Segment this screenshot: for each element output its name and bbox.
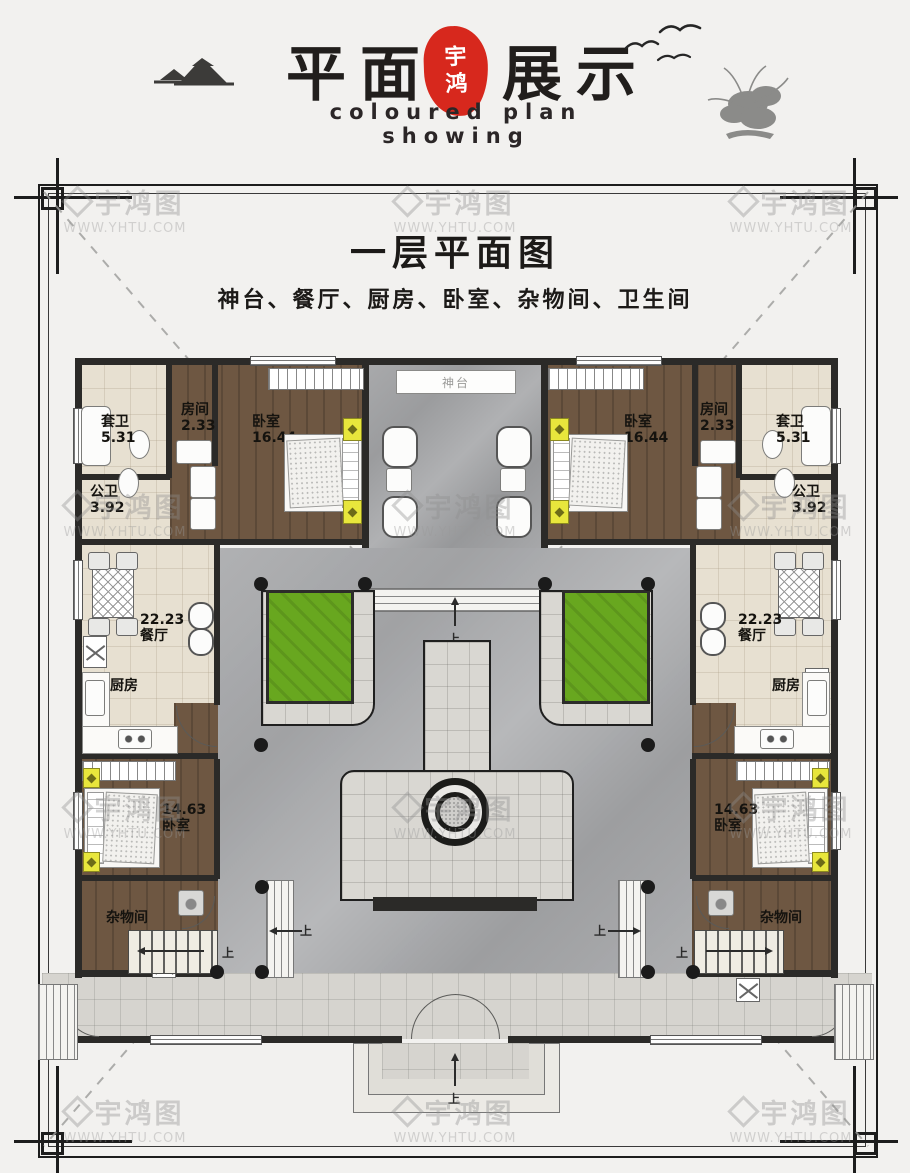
room-name: 套卫 xyxy=(776,414,811,430)
wall xyxy=(692,875,838,881)
column xyxy=(358,577,372,591)
dining-chair xyxy=(88,552,110,570)
up-label: 上 xyxy=(448,1090,460,1107)
room-label-bedroom-front-right: 卧室 16.44 xyxy=(624,414,668,446)
basin xyxy=(700,440,736,464)
side-table xyxy=(500,468,526,492)
wardrobe xyxy=(548,368,644,390)
room-name: 公卫 xyxy=(90,484,125,500)
wall xyxy=(690,759,696,879)
room-area: 2.33 xyxy=(700,418,735,434)
room-name: 厨房 xyxy=(110,678,138,694)
grass-bed-left xyxy=(266,590,354,704)
dining-chair xyxy=(802,618,824,636)
room-name: 杂物间 xyxy=(760,910,802,926)
window xyxy=(576,356,662,366)
dining-chair xyxy=(116,618,138,636)
column xyxy=(641,577,655,591)
lounge-chair xyxy=(700,628,726,656)
window xyxy=(650,1035,762,1045)
wall xyxy=(541,358,548,548)
fridge xyxy=(83,636,107,668)
poster-canvas: 平面 宇 鸿 展示 coloured plan showing xyxy=(0,0,910,1173)
column xyxy=(210,965,224,979)
room-area: 14.63 xyxy=(714,802,758,818)
room-name: 卧室 xyxy=(252,414,296,430)
column xyxy=(686,965,700,979)
room-area: 22.23 xyxy=(140,612,184,628)
window xyxy=(831,560,841,620)
window xyxy=(831,792,841,850)
window xyxy=(150,1035,262,1045)
room-label-dining-right: 22.23 餐厅 xyxy=(738,612,782,644)
kitchen-sink xyxy=(807,680,827,716)
lounge-chair xyxy=(188,628,214,656)
room-label-publicbath-right: 公卫 3.92 xyxy=(792,484,827,516)
nightstand-yellow xyxy=(343,500,362,524)
column xyxy=(255,965,269,979)
bed-blanket xyxy=(568,438,625,509)
up-arrow xyxy=(140,950,204,952)
window xyxy=(73,560,83,620)
room-name: 杂物间 xyxy=(106,910,148,926)
armchair xyxy=(496,426,532,468)
bed-pillows xyxy=(553,438,570,508)
grass-bed-right xyxy=(562,590,650,704)
up-label: 上 xyxy=(676,944,688,961)
room-name: 房间 xyxy=(181,402,216,418)
up-arrow xyxy=(454,1056,456,1086)
room-name: 餐厅 xyxy=(140,628,184,644)
birds-icon xyxy=(624,20,704,70)
page-subtitle: 神台、餐厅、厨房、卧室、杂物间、卫生间 xyxy=(105,282,805,314)
room-area: 16.44 xyxy=(624,430,668,446)
room-name: 房间 xyxy=(700,402,735,418)
vanity-sink xyxy=(696,466,722,498)
room-name: 卧室 xyxy=(714,818,758,834)
utility-box xyxy=(736,978,760,1002)
lounge-chair xyxy=(188,602,214,630)
room-label-kitchen-left: 厨房 xyxy=(110,678,138,694)
room-label-publicbath-left: 公卫 3.92 xyxy=(90,484,125,516)
dining-table xyxy=(92,568,134,618)
wall xyxy=(692,362,698,466)
bed-blanket xyxy=(754,792,810,865)
up-label: 上 xyxy=(594,922,606,939)
nightstand-yellow xyxy=(550,418,569,441)
room-label-smallroom-right: 房间 2.33 xyxy=(700,402,735,434)
wall xyxy=(214,545,220,705)
nightstand-yellow xyxy=(550,500,569,524)
lounge-chair xyxy=(700,602,726,630)
column xyxy=(254,738,268,752)
stove xyxy=(760,729,794,749)
wall xyxy=(690,545,696,705)
room-area: 5.31 xyxy=(776,430,811,446)
seal-char-1: 宇 xyxy=(444,43,467,71)
nightstand-yellow xyxy=(343,418,362,441)
nightstand-yellow xyxy=(83,768,100,788)
bed-blanket xyxy=(286,438,343,509)
dining-chair xyxy=(116,552,138,570)
room-label-storage-right: 杂物间 xyxy=(760,910,802,926)
room-area: 14.63 xyxy=(162,802,206,818)
bed-blanket xyxy=(102,792,158,865)
room-label-kitchen-right: 厨房 xyxy=(772,678,800,694)
armchair xyxy=(382,496,418,538)
room-area: 2.33 xyxy=(181,418,216,434)
column xyxy=(641,738,655,752)
nightstand-yellow xyxy=(812,852,829,872)
altar-label: 神台 xyxy=(442,374,470,391)
wardrobe xyxy=(268,368,364,390)
window xyxy=(250,356,336,366)
column xyxy=(254,577,268,591)
vanity-sink xyxy=(696,498,722,530)
window xyxy=(73,792,83,850)
side-table xyxy=(386,468,412,492)
basin xyxy=(176,440,212,464)
tree-icon xyxy=(696,56,796,140)
dining-chair xyxy=(88,618,110,636)
room-name: 套卫 xyxy=(101,414,136,430)
room-name: 卧室 xyxy=(162,818,206,834)
dining-table xyxy=(778,568,820,618)
nightstand-yellow xyxy=(812,768,829,788)
up-label: 上 xyxy=(300,922,312,939)
armchair xyxy=(496,496,532,538)
room-label-storage-left: 杂物间 xyxy=(106,910,148,926)
room-name: 厨房 xyxy=(772,678,800,694)
up-label: 上 xyxy=(222,944,234,961)
column xyxy=(641,880,655,894)
seal-char-2: 鸿 xyxy=(445,71,468,99)
room-label-smallroom-left: 房间 2.33 xyxy=(181,402,216,434)
room-name: 卧室 xyxy=(624,414,668,430)
wall xyxy=(736,362,742,478)
room-area: 3.92 xyxy=(792,500,827,516)
column xyxy=(641,965,655,979)
room-area: 3.92 xyxy=(90,500,125,516)
room-label-bedroom-rear-left: 14.63 卧室 xyxy=(162,802,206,834)
wall xyxy=(78,539,366,545)
stove xyxy=(118,729,152,749)
up-arrow xyxy=(272,930,302,932)
dining-chair xyxy=(802,552,824,570)
screen-wall xyxy=(373,897,537,911)
up-arrow xyxy=(454,600,456,626)
room-label-ensuite-right: 套卫 5.31 xyxy=(776,414,811,446)
room-name: 餐厅 xyxy=(738,628,782,644)
kitchen-sink xyxy=(85,680,105,716)
armchair xyxy=(382,426,418,468)
east-entry-steps xyxy=(834,984,874,1060)
west-entry-steps xyxy=(38,984,78,1060)
wall xyxy=(75,358,838,365)
room-area: 5.31 xyxy=(101,430,136,446)
courtyard-circle-center xyxy=(435,792,475,832)
column xyxy=(538,577,552,591)
room-label-bedroom-rear-right: 14.63 卧室 xyxy=(714,802,758,834)
nightstand-yellow xyxy=(83,852,100,872)
bed-pillows xyxy=(342,438,359,508)
wall xyxy=(214,759,220,879)
wall xyxy=(78,875,218,881)
header-subtitle: coloured plan showing xyxy=(276,100,636,148)
wall xyxy=(166,362,172,478)
dining-chair xyxy=(774,552,796,570)
altar-table: 神台 xyxy=(396,370,516,394)
courtyard-center-path xyxy=(423,640,491,782)
window xyxy=(831,408,841,464)
room-name: 公卫 xyxy=(792,484,827,500)
up-arrow xyxy=(608,930,638,932)
vanity-sink xyxy=(190,498,216,530)
up-arrow xyxy=(706,950,770,952)
room-label-ensuite-left: 套卫 5.31 xyxy=(101,414,136,446)
mountain-icon xyxy=(140,36,260,96)
room-area: 22.23 xyxy=(738,612,782,628)
room-label-dining-left: 22.23 餐厅 xyxy=(140,612,184,644)
column xyxy=(255,880,269,894)
page-title: 一层平面图 xyxy=(255,224,655,276)
vanity-sink xyxy=(190,466,216,498)
